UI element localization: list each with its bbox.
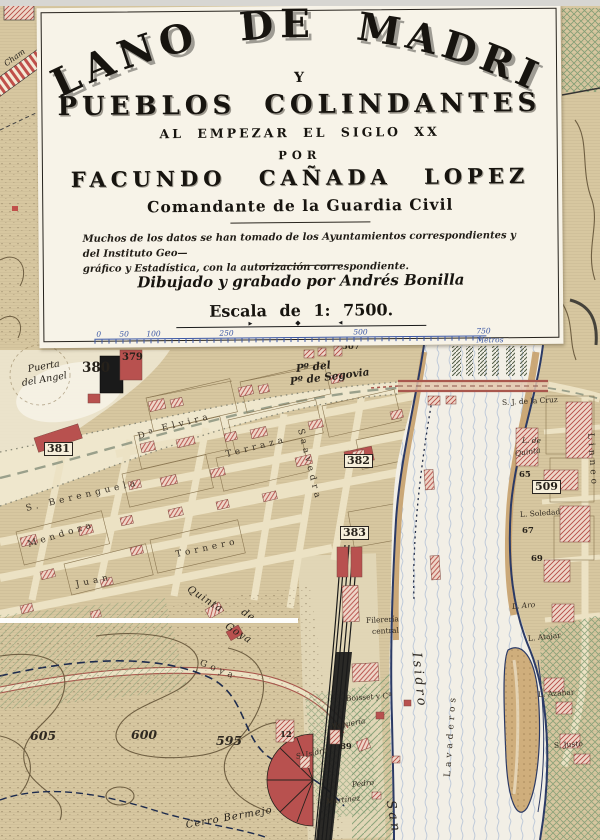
scale-tick-label: 100 [146, 329, 160, 338]
scale-ornament-left-icon: ► [247, 320, 253, 327]
source-note: Muchos de los datos se han tomado de los… [82, 228, 528, 277]
scale-bar: 050100250500750 Metros [89, 326, 509, 346]
scale-tick-label: 50 [119, 329, 129, 338]
title-cartouche: PLANO DE MADRID PLANO DE MADRID Y PUEBLO… [37, 4, 564, 349]
map-page: ChamPuertadel Angel380379381507Pº delPº … [0, 0, 600, 840]
scale-tick-label: 250 [219, 329, 233, 338]
scale-ornament-right-icon: ◄ [337, 320, 343, 327]
scan-edge [0, 0, 600, 6]
scan-artifact [0, 618, 298, 623]
river-manzanares [389, 345, 547, 840]
source-note-line1: Muchos de los datos se han tomado de los… [82, 230, 516, 260]
scale-tick-label: 500 [353, 327, 367, 336]
subtitle: PUEBLOS COLINDANTES [37, 88, 561, 123]
scale-ornament-center-icon: ◆ [295, 319, 300, 327]
author-name: FACUNDO CAÑADA LOPEZ [38, 163, 562, 193]
scale-tick-label: 0 [96, 330, 101, 339]
